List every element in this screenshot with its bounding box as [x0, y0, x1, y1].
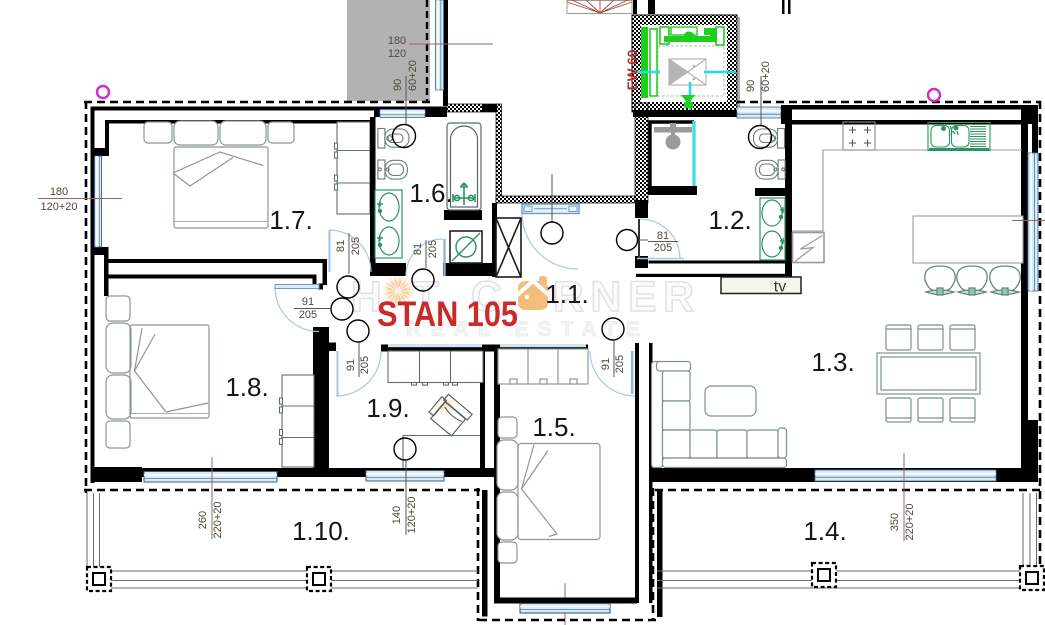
- svg-text:205: 205: [350, 237, 362, 255]
- svg-text:81: 81: [657, 230, 669, 242]
- svg-text:1.4.: 1.4.: [803, 516, 846, 546]
- svg-text:91: 91: [302, 296, 314, 308]
- svg-text:120: 120: [388, 48, 406, 60]
- svg-text:220+20: 220+20: [212, 501, 224, 538]
- svg-text:1.9.: 1.9.: [366, 393, 409, 423]
- svg-text:120+20: 120+20: [406, 496, 418, 533]
- svg-text:90: 90: [392, 79, 404, 91]
- svg-text:91: 91: [345, 359, 357, 371]
- svg-text:tv: tv: [774, 279, 786, 296]
- svg-text:60+20: 60+20: [407, 60, 419, 91]
- svg-text:350: 350: [889, 513, 901, 531]
- svg-text:1.8.: 1.8.: [225, 372, 268, 402]
- svg-text:81: 81: [412, 243, 424, 255]
- svg-text:205: 205: [427, 240, 439, 258]
- svg-text:81: 81: [335, 240, 347, 252]
- svg-text:140: 140: [391, 506, 403, 524]
- svg-text:260: 260: [197, 511, 209, 529]
- svg-text:1.6.: 1.6.: [409, 178, 452, 208]
- svg-text:205: 205: [359, 356, 371, 374]
- svg-text:180: 180: [50, 186, 68, 198]
- svg-text:205: 205: [654, 242, 672, 254]
- svg-text:180: 180: [388, 35, 406, 47]
- svg-text:90: 90: [745, 80, 757, 92]
- svg-text:1.3.: 1.3.: [811, 347, 854, 377]
- svg-text:205: 205: [299, 309, 317, 321]
- svg-text:220+20: 220+20: [904, 503, 916, 540]
- svg-text:60+20: 60+20: [760, 61, 772, 92]
- svg-text:1.1.: 1.1.: [545, 279, 588, 309]
- svg-text:120+20: 120+20: [40, 201, 77, 213]
- svg-text:STAN 105: STAN 105: [377, 295, 518, 334]
- svg-text:1.5.: 1.5.: [532, 412, 575, 442]
- svg-text:205: 205: [614, 355, 626, 373]
- svg-text:91: 91: [600, 358, 612, 370]
- svg-text:1.2.: 1.2.: [708, 205, 751, 235]
- svg-text:1.7.: 1.7.: [269, 205, 312, 235]
- svg-text:1.10.: 1.10.: [292, 516, 350, 546]
- svg-text:EW 60: EW 60: [625, 50, 640, 91]
